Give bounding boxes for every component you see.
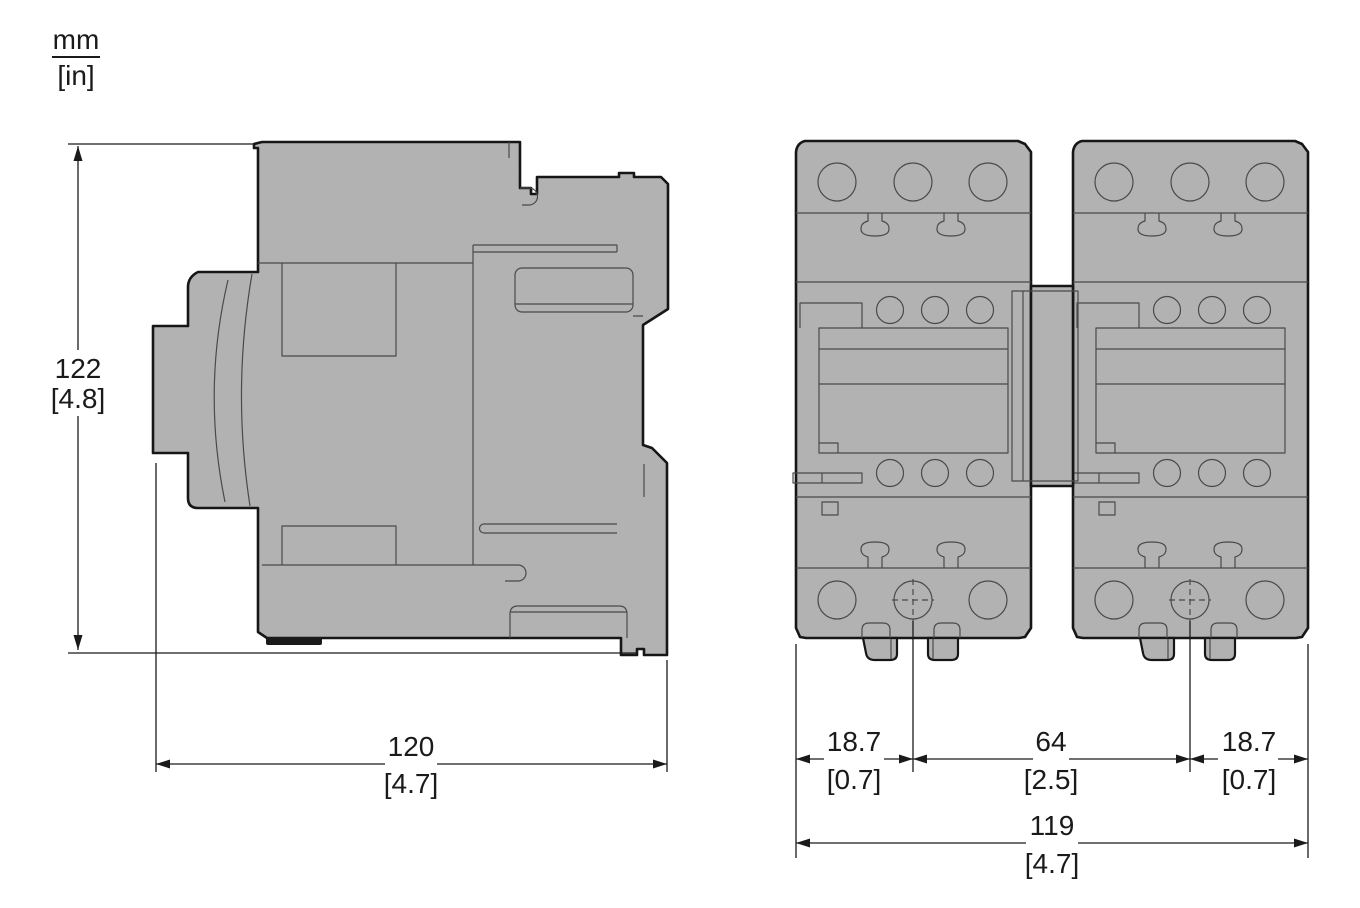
side-view-outline bbox=[153, 142, 668, 655]
units-mm-label: mm bbox=[53, 24, 100, 55]
front-left-offset-mm-label: 18.7 bbox=[827, 726, 882, 757]
side-height-in-label: [4.8] bbox=[51, 383, 105, 414]
side-height-mm-label: 122 bbox=[55, 353, 102, 384]
side-width-in-label: [4.7] bbox=[384, 768, 438, 799]
front-center-spacing-mm-label: 64 bbox=[1035, 726, 1066, 757]
front-view-dimensions: 18.7 [0.7] 64 [2.5] 18.7 [0.7] 119 [4.7] bbox=[796, 644, 1308, 879]
front-overall-width-mm-label: 119 bbox=[1030, 810, 1075, 841]
page: mm [in] 122 [4.8] 120 [4.7] bbox=[0, 0, 1360, 908]
front-overall-width-in-label: [4.7] bbox=[1025, 848, 1079, 879]
front-center-spacing-in-label: [2.5] bbox=[1024, 764, 1078, 795]
front-right-offset-in-label: [0.7] bbox=[1222, 764, 1276, 795]
front-view-unit-2 bbox=[1070, 141, 1308, 772]
side-width-mm-label: 120 bbox=[388, 731, 435, 762]
units-label: mm [in] bbox=[52, 24, 100, 91]
din-clip-tab bbox=[266, 637, 322, 645]
front-view-unit-1 bbox=[793, 141, 1031, 772]
units-in-label: [in] bbox=[57, 60, 94, 91]
front-left-offset-in-label: [0.7] bbox=[827, 764, 881, 795]
front-right-offset-mm-label: 18.7 bbox=[1222, 726, 1277, 757]
side-view-drawing bbox=[153, 142, 668, 655]
technical-drawing: mm [in] 122 [4.8] 120 [4.7] bbox=[0, 0, 1360, 908]
front-view-drawing bbox=[793, 141, 1308, 772]
